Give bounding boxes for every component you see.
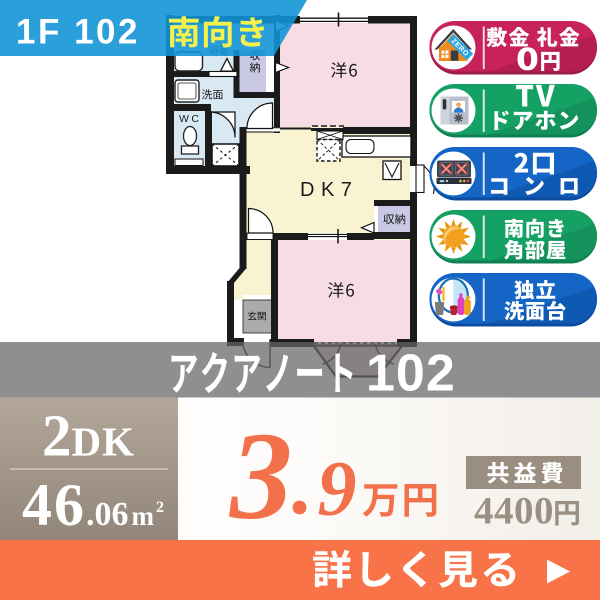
svg-text:WC: WC xyxy=(179,113,202,125)
svg-text:102: 102 xyxy=(366,345,456,403)
svg-text:4400: 4400 xyxy=(474,490,554,533)
svg-text:DK7: DK7 xyxy=(300,179,358,201)
svg-text:9: 9 xyxy=(318,445,357,532)
svg-text:1F 102: 1F 102 xyxy=(16,13,140,52)
svg-text:3: 3 xyxy=(229,408,293,546)
